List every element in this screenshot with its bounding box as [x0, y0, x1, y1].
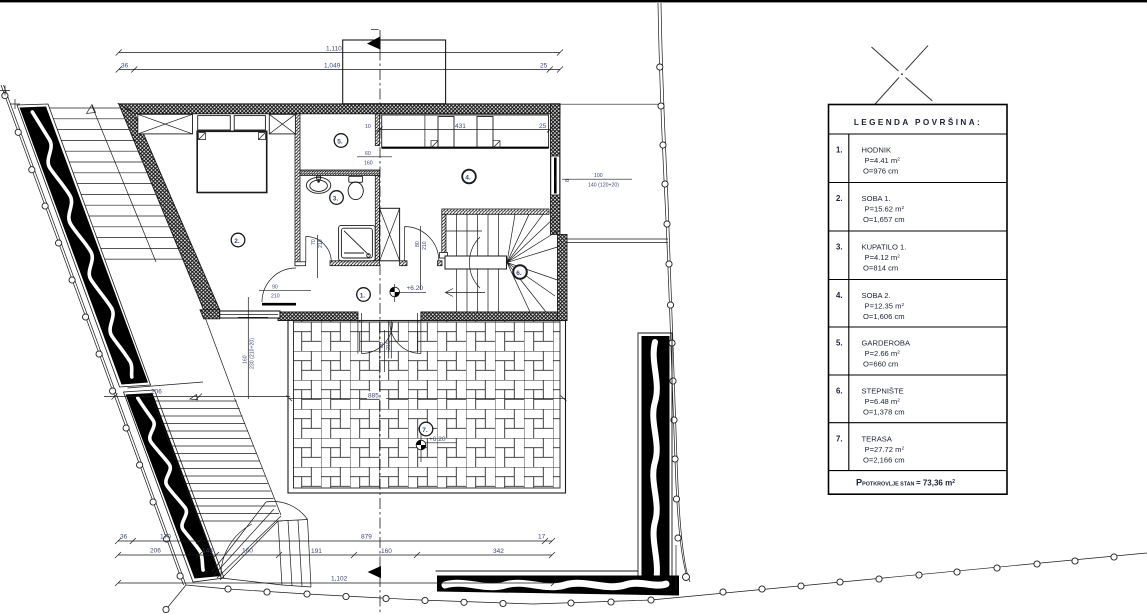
svg-text:17: 17 [538, 534, 546, 541]
svg-text:170: 170 [160, 534, 171, 541]
svg-text:P=2.66 m2: P=2.66 m2 [865, 349, 901, 358]
svg-text:25: 25 [540, 63, 548, 70]
svg-text:210: 210 [422, 241, 428, 250]
svg-text:160: 160 [243, 355, 249, 364]
svg-text:206: 206 [150, 548, 161, 555]
svg-text:80: 80 [415, 241, 421, 247]
svg-text:1,110: 1,110 [326, 46, 342, 53]
svg-text:210: 210 [271, 294, 280, 300]
svg-text:P=6.48 m2: P=6.48 m2 [865, 397, 901, 406]
svg-text:P=4.41 m2: P=4.41 m2 [865, 156, 901, 165]
svg-text:P=4.12 m2: P=4.12 m2 [865, 253, 901, 262]
svg-text:TERASA: TERASA [862, 435, 893, 444]
svg-text:36: 36 [121, 63, 129, 70]
svg-text:342: 342 [493, 548, 504, 555]
svg-text:1.: 1. [836, 146, 843, 155]
svg-text:4.: 4. [465, 174, 471, 181]
svg-text:140 (120+20): 140 (120+20) [588, 183, 619, 189]
svg-text:210: 210 [318, 239, 324, 248]
svg-text:7.: 7. [422, 427, 428, 434]
svg-text:O=660 cm: O=660 cm [863, 360, 898, 369]
svg-text:10: 10 [365, 124, 371, 130]
svg-text:90: 90 [272, 285, 278, 291]
svg-text:P=12.35 m2: P=12.35 m2 [865, 302, 905, 311]
svg-text:LEGENDA POVRŠINA:: LEGENDA POVRŠINA: [854, 116, 982, 127]
svg-text:+6.20: +6.20 [407, 285, 424, 292]
svg-text:HODNIK: HODNIK [862, 146, 892, 155]
svg-text:O=1,657 cm: O=1,657 cm [863, 215, 905, 224]
svg-text:160: 160 [364, 161, 373, 167]
svg-text:1,102: 1,102 [331, 576, 348, 583]
svg-text:KUPATILO 1.: KUPATILO 1. [862, 243, 907, 252]
svg-text:STEPNIŠTE: STEPNIŠTE [862, 387, 904, 396]
svg-text:1.: 1. [360, 292, 366, 299]
svg-text:O=2,166 cm: O=2,166 cm [863, 456, 905, 465]
svg-text:8: 8 [565, 179, 571, 182]
svg-text:P=27.72 m2: P=27.72 m2 [865, 445, 905, 454]
svg-text:206: 206 [151, 389, 162, 396]
svg-text:6.: 6. [516, 270, 522, 277]
svg-text:7.: 7. [836, 435, 843, 444]
svg-text:25: 25 [539, 123, 547, 130]
svg-text:6.: 6. [836, 387, 843, 396]
svg-text:210: 210 [386, 341, 392, 350]
svg-text:100: 100 [594, 173, 603, 179]
svg-text:GARDEROBA: GARDEROBA [862, 339, 911, 348]
svg-text:O=814 cm: O=814 cm [863, 264, 898, 273]
svg-text:191: 191 [311, 548, 322, 555]
svg-text:O=976 cm: O=976 cm [863, 167, 898, 176]
svg-text:O=1,606 cm: O=1,606 cm [863, 312, 905, 321]
svg-text:5.: 5. [836, 339, 843, 348]
svg-text:143: 143 [202, 548, 213, 555]
svg-text:60: 60 [365, 151, 371, 157]
svg-text:2.: 2. [836, 194, 843, 203]
svg-text:431: 431 [455, 123, 466, 130]
svg-text:160: 160 [242, 548, 253, 555]
svg-text:4.: 4. [836, 291, 843, 300]
svg-text:SOBA 2.: SOBA 2. [862, 291, 891, 300]
svg-text:230 (210+20): 230 (210+20) [250, 338, 256, 369]
svg-text:5.: 5. [337, 138, 343, 145]
svg-text:2.: 2. [234, 238, 240, 245]
svg-text:885: 885 [368, 393, 379, 400]
svg-text:SOBA 1.: SOBA 1. [862, 194, 891, 203]
svg-text:70: 70 [311, 239, 317, 245]
svg-text:160: 160 [381, 548, 392, 555]
svg-text:3.: 3. [333, 195, 339, 202]
svg-text:+6.20: +6.20 [429, 436, 446, 443]
svg-text:3.: 3. [836, 243, 843, 252]
svg-text:879: 879 [361, 534, 372, 541]
svg-text:P=15.62 m2: P=15.62 m2 [865, 205, 905, 214]
svg-text:1,049: 1,049 [324, 63, 341, 70]
svg-text:O=1,378 cm: O=1,378 cm [863, 408, 905, 417]
svg-text:36: 36 [120, 534, 128, 541]
